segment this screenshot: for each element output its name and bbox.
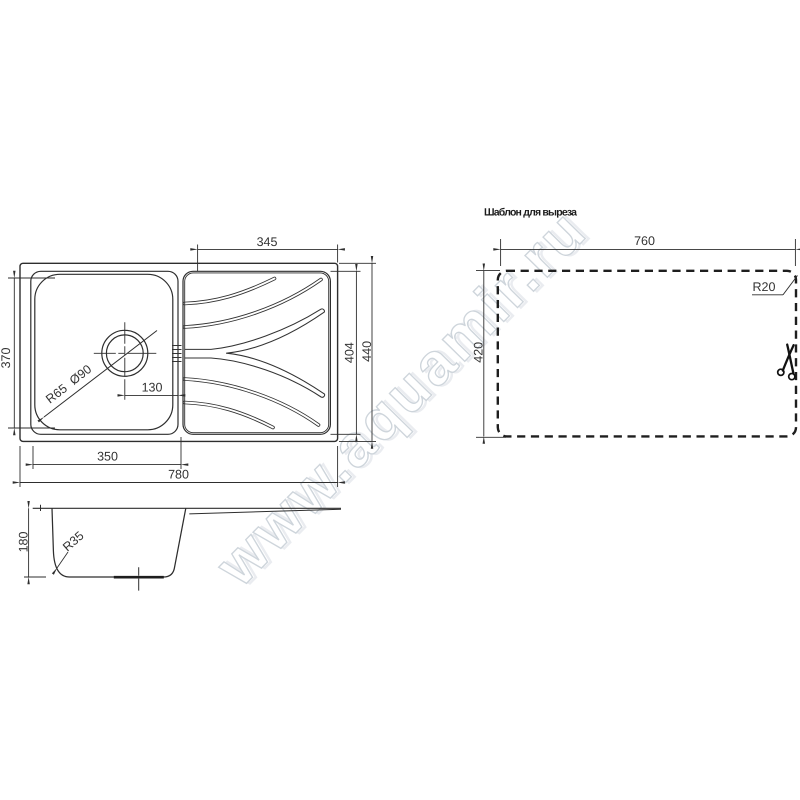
svg-text:R20: R20: [753, 280, 776, 294]
svg-text:130: 130: [142, 381, 163, 395]
svg-text:780: 780: [168, 468, 189, 482]
svg-text:345: 345: [257, 235, 278, 249]
svg-text:370: 370: [0, 348, 13, 369]
svg-text:Шаблон для выреза: Шаблон для выреза: [484, 206, 577, 218]
svg-text:Ø90: Ø90: [67, 362, 94, 388]
svg-text:440: 440: [360, 341, 374, 362]
svg-text:180: 180: [17, 532, 31, 553]
svg-text:350: 350: [97, 450, 118, 464]
svg-text:www.aquamir.ru: www.aquamir.ru: [202, 196, 599, 598]
svg-text:420: 420: [472, 342, 486, 363]
svg-text:R65: R65: [43, 381, 70, 406]
svg-text:760: 760: [634, 234, 655, 248]
svg-text:R35: R35: [60, 529, 87, 555]
svg-text:404: 404: [342, 342, 356, 363]
